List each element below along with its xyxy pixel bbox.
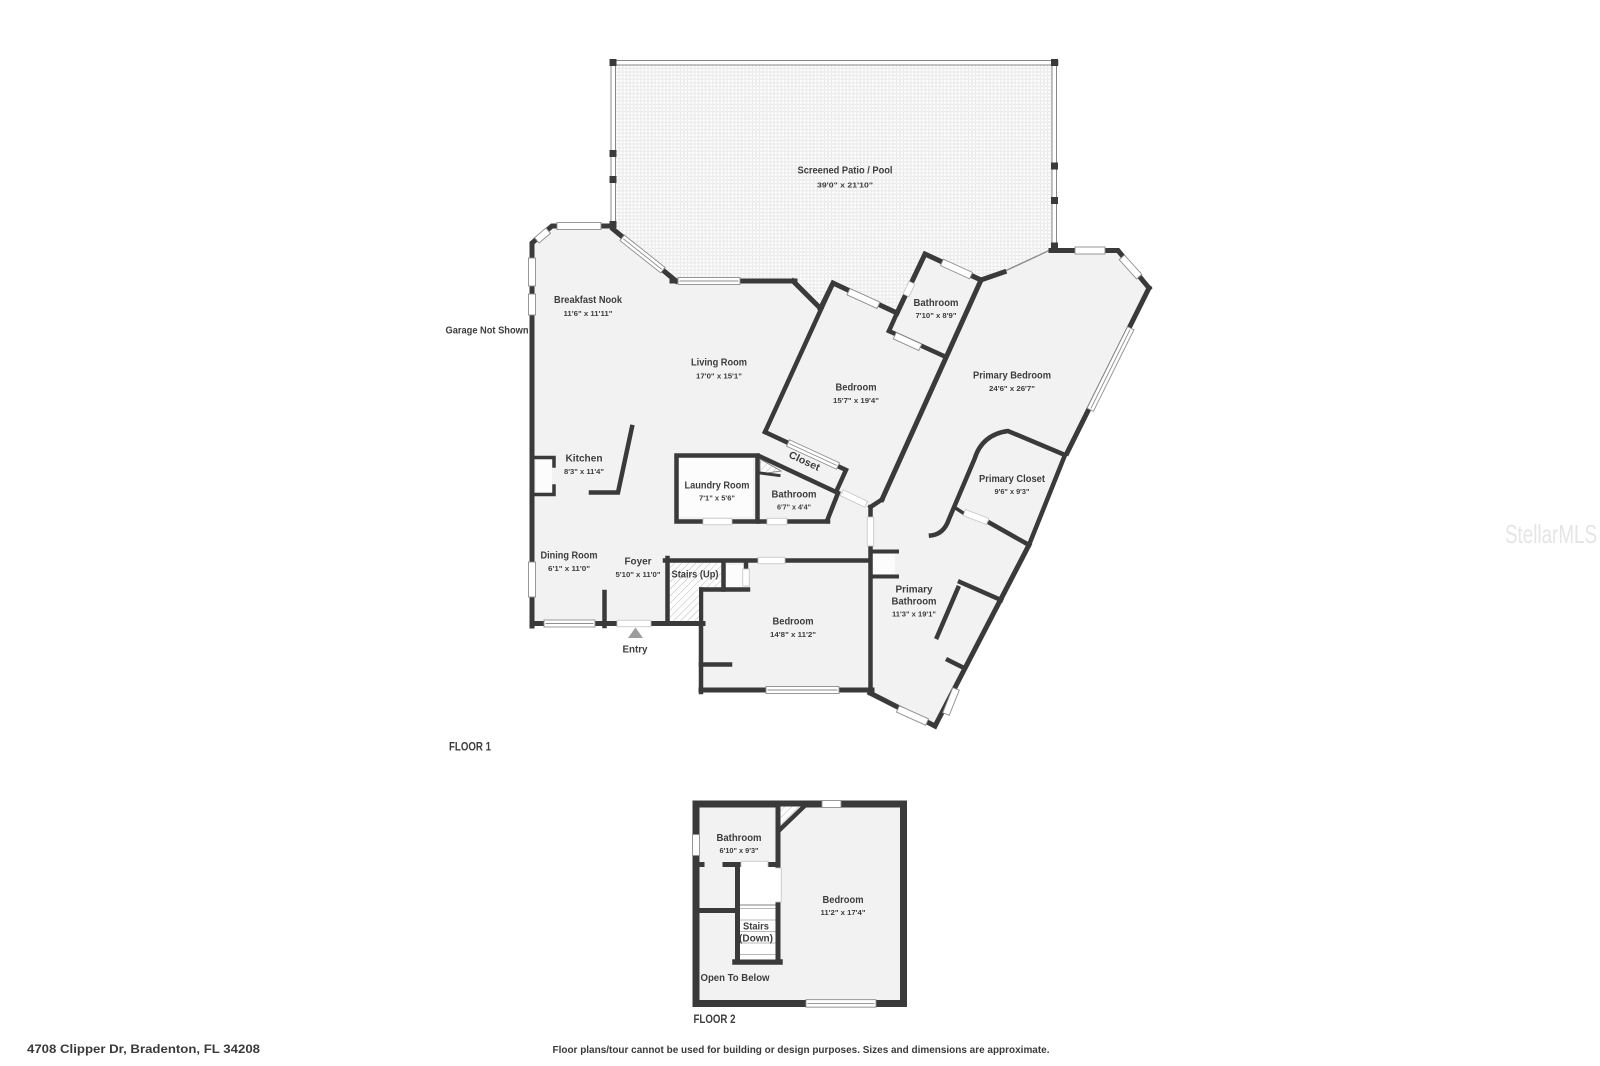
- svg-text:8'3" x 11'4": 8'3" x 11'4": [564, 467, 604, 476]
- svg-text:Floor plans/tour cannot be use: Floor plans/tour cannot be used for buil…: [553, 1045, 1050, 1056]
- svg-text:7'10" x 8'9": 7'10" x 8'9": [916, 311, 957, 320]
- svg-text:(Down): (Down): [739, 934, 773, 945]
- svg-text:7'1" x 5'6": 7'1" x 5'6": [699, 494, 735, 503]
- svg-text:Primary Closet: Primary Closet: [979, 474, 1046, 485]
- svg-text:14'8" x 11'2": 14'8" x 11'2": [770, 630, 816, 639]
- svg-text:6'1" x 11'0": 6'1" x 11'0": [548, 564, 590, 573]
- svg-text:Open To Below: Open To Below: [701, 973, 770, 984]
- svg-text:Dining Room: Dining Room: [541, 551, 598, 562]
- svg-text:5'10" x 11'0": 5'10" x 11'0": [616, 570, 661, 579]
- svg-text:17'0" x 15'1": 17'0" x 15'1": [696, 372, 742, 381]
- svg-text:StellarMLS: StellarMLS: [1505, 519, 1597, 549]
- svg-text:Living Room: Living Room: [691, 358, 747, 369]
- svg-text:24'6" x 26'7": 24'6" x 26'7": [989, 384, 1035, 393]
- svg-text:Bedroom: Bedroom: [836, 383, 877, 394]
- svg-text:11'6" x 11'11": 11'6" x 11'11": [564, 309, 613, 318]
- svg-text:Primary Bedroom: Primary Bedroom: [973, 371, 1051, 382]
- svg-text:9'6" x 9'3": 9'6" x 9'3": [995, 487, 1030, 496]
- svg-text:Stairs: Stairs: [743, 922, 769, 933]
- svg-text:11'3" x 19'1": 11'3" x 19'1": [892, 610, 936, 619]
- svg-text:Entry: Entry: [623, 645, 648, 656]
- svg-text:Bathroom: Bathroom: [914, 298, 959, 309]
- svg-text:Bathroom: Bathroom: [772, 490, 817, 501]
- svg-text:FLOOR 2: FLOOR 2: [694, 1012, 736, 1026]
- svg-text:4708 Clipper Dr, Bradenton, FL: 4708 Clipper Dr, Bradenton, FL 34208: [27, 1042, 260, 1056]
- svg-text:15'7" x 19'4": 15'7" x 19'4": [833, 396, 879, 405]
- svg-text:Foyer: Foyer: [625, 557, 652, 568]
- svg-text:39'0" x 21'10": 39'0" x 21'10": [817, 181, 873, 190]
- svg-text:FLOOR 1: FLOOR 1: [449, 740, 491, 754]
- svg-text:Screened Patio / Pool: Screened Patio / Pool: [798, 166, 893, 177]
- svg-text:6'7" x 4'4": 6'7" x 4'4": [777, 503, 811, 512]
- svg-text:Breakfast Nook: Breakfast Nook: [554, 295, 622, 306]
- svg-text:Primary: Primary: [896, 585, 933, 596]
- svg-text:11'2" x 17'4": 11'2" x 17'4": [821, 908, 866, 917]
- svg-text:Stairs (Up): Stairs (Up): [672, 570, 719, 581]
- svg-text:Bathroom: Bathroom: [892, 597, 937, 608]
- svg-text:6'10" x 9'3": 6'10" x 9'3": [720, 846, 759, 855]
- svg-text:Bathroom: Bathroom: [717, 833, 762, 844]
- svg-text:Garage Not Shown: Garage Not Shown: [446, 326, 529, 337]
- svg-text:Bedroom: Bedroom: [823, 895, 864, 906]
- svg-text:Laundry Room: Laundry Room: [685, 481, 750, 492]
- svg-text:Kitchen: Kitchen: [566, 454, 603, 465]
- svg-text:Bedroom: Bedroom: [773, 617, 814, 628]
